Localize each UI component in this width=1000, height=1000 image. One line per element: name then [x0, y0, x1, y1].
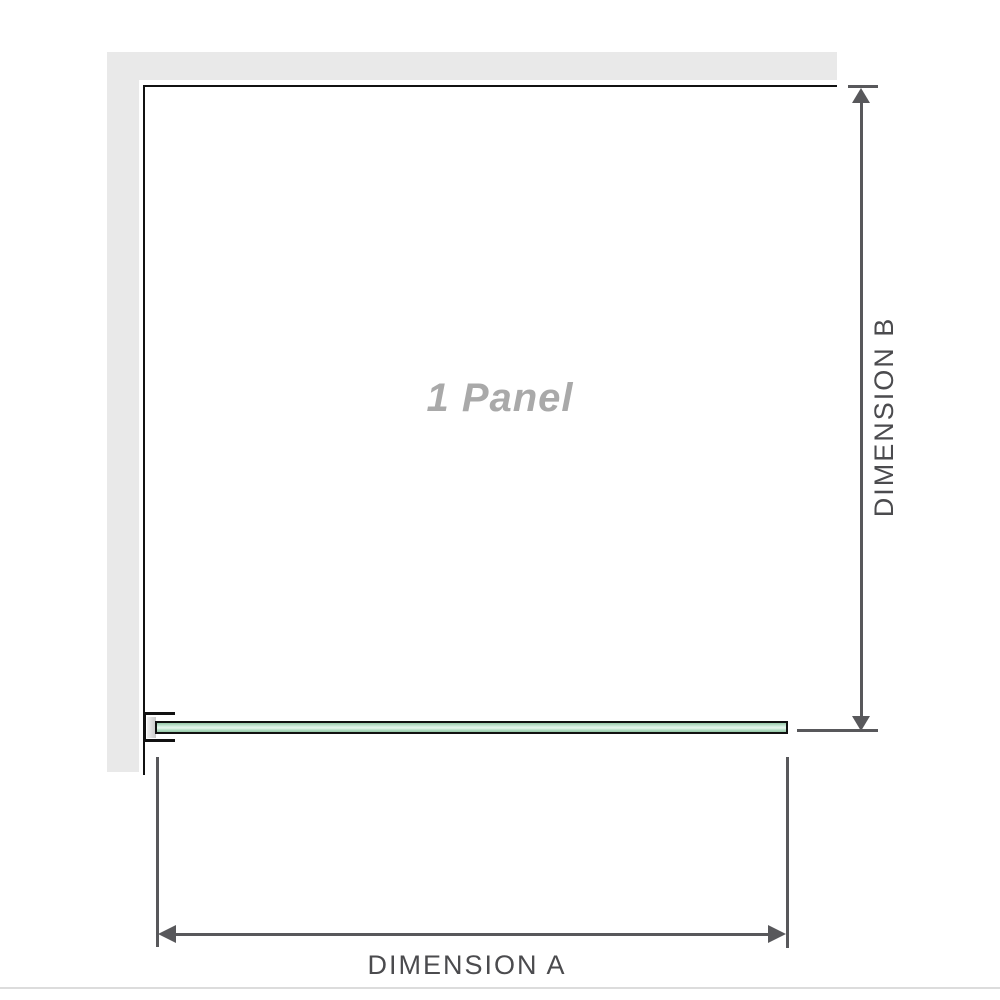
arrow-left-icon [158, 925, 176, 943]
wall-top-bar [107, 52, 837, 80]
image-bottom-divider [0, 987, 1000, 989]
arrow-right-icon [768, 925, 786, 943]
dimension-a-label: DIMENSION A [317, 950, 617, 980]
arrow-down-icon [852, 716, 870, 731]
enclosure-top-edge [143, 85, 837, 87]
wall-side-bar [107, 52, 139, 772]
dimension-b-label: DIMENSION B [869, 267, 899, 567]
enclosure-left-edge [143, 85, 145, 775]
arrow-up-icon [852, 88, 870, 103]
diagram-canvas: 1 Panel DIMENSION B DIMENSION A [0, 0, 1000, 1000]
dim-a-line [170, 933, 775, 936]
panel-count-label: 1 Panel [350, 374, 650, 422]
glass-panel [155, 721, 788, 734]
dim-a-right-tick [786, 757, 789, 948]
dim-a-left-tick [156, 757, 159, 947]
dim-b-line [860, 98, 863, 722]
